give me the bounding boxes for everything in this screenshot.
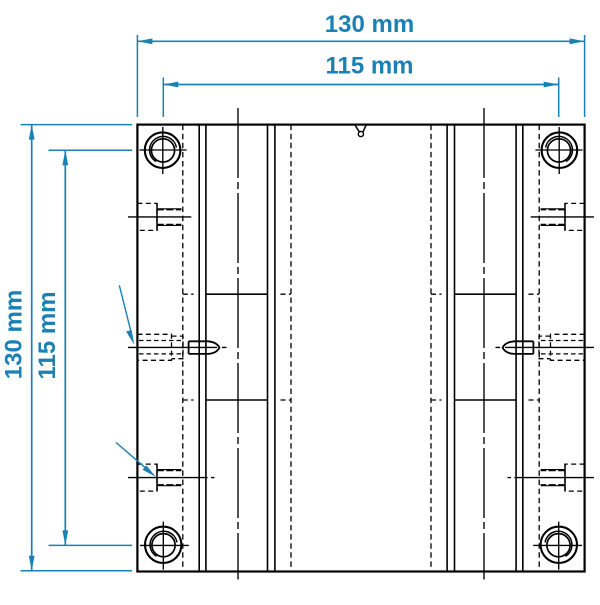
svg-text:130 mm: 130 mm xyxy=(1,290,28,379)
svg-text:115 mm: 115 mm xyxy=(325,52,413,79)
svg-text:130 mm: 130 mm xyxy=(325,11,414,38)
svg-text:115 mm: 115 mm xyxy=(34,291,61,379)
